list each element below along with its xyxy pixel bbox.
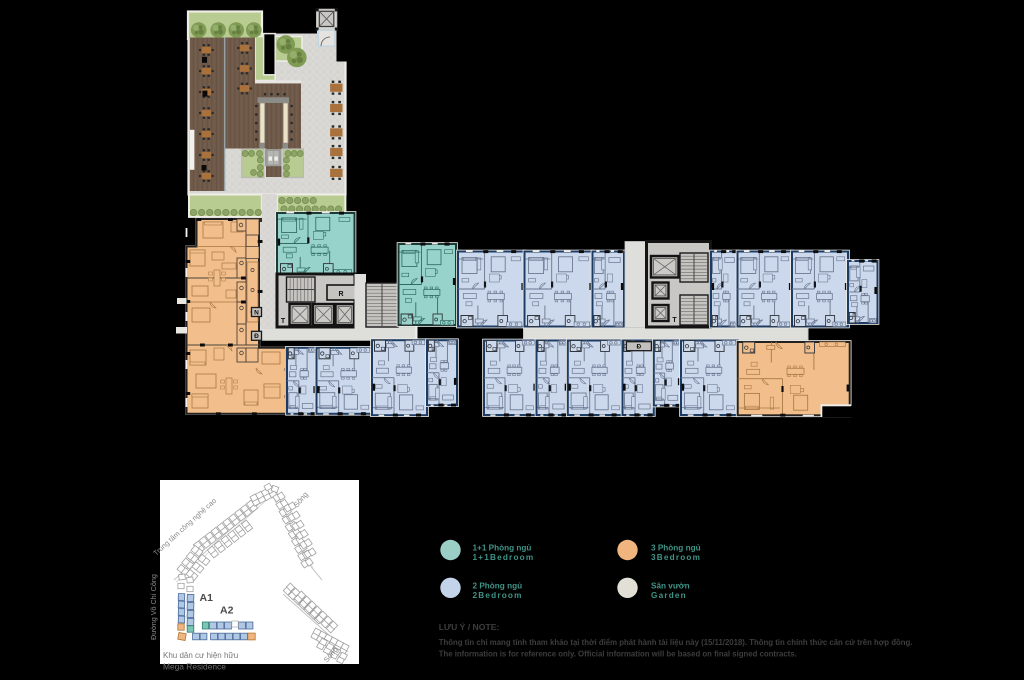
svg-text:1+1Bedroom: 1+1Bedroom [473,553,535,562]
svg-text:LƯU Ý / NOTE:: LƯU Ý / NOTE: [439,621,500,632]
svg-text:R: R [338,291,343,298]
svg-text:3Bedroom: 3Bedroom [651,553,701,562]
svg-text:2Bedroom: 2Bedroom [473,591,523,600]
svg-text:Sân vườn: Sân vườn [651,581,690,590]
svg-text:T: T [281,318,286,325]
svg-text:Đ: Đ [637,344,642,351]
svg-text:A1: A1 [200,592,214,604]
svg-text:Thông tin chỉ mang tính tham k: Thông tin chỉ mang tính tham khảo tại th… [439,638,913,647]
svg-text:1+1 Phòng ngủ: 1+1 Phòng ngủ [473,544,532,553]
svg-text:Mega Residence: Mega Residence [163,662,226,672]
svg-text:Garden: Garden [651,591,687,600]
svg-text:T: T [672,317,677,324]
svg-text:Khu dân cư hiện hữu: Khu dân cư hiện hữu [163,651,238,660]
svg-text:2 Phòng ngủ: 2 Phòng ngủ [473,581,523,590]
svg-text:N: N [254,309,259,316]
svg-text:A2: A2 [220,605,234,617]
svg-text:3 Phòng ngủ: 3 Phòng ngủ [651,544,701,553]
svg-text:Đ: Đ [254,333,259,340]
svg-text:Đường Võ Chí Công: Đường Võ Chí Công [149,574,158,640]
svg-text:The information is for referen: The information is for reference only. O… [439,650,797,659]
